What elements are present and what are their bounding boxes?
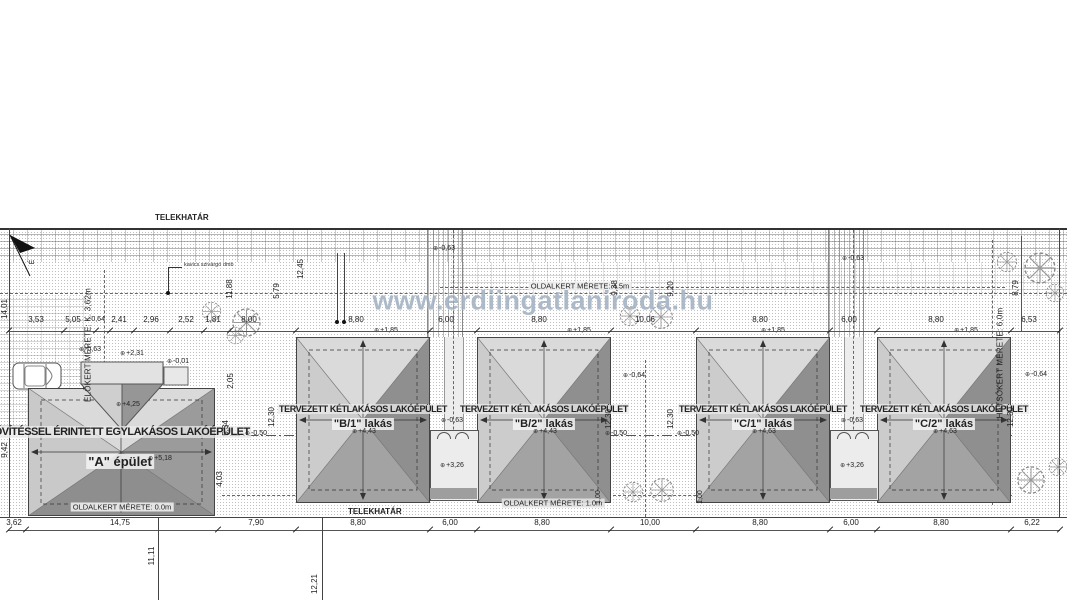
elevation-mark: -0,50 <box>605 430 627 438</box>
dim-value: 12,45 <box>297 259 305 279</box>
elevation-mark: +3,26 <box>440 462 464 470</box>
elevation-mark: +3,26 <box>840 462 864 470</box>
elevation-mark: -0,63 <box>841 417 863 425</box>
dim-value: 9,42 <box>1 442 9 458</box>
step-icon <box>455 432 469 439</box>
pole-dot <box>335 320 339 324</box>
sideyard-label-a: OLDALKERT MÉRETE: 0.0m <box>71 503 174 512</box>
elevation-mark: +4,43 <box>533 428 557 436</box>
dim-value: 4,03 <box>216 471 224 487</box>
dim-value: 1,00 <box>697 490 705 504</box>
elevation-mark: -0,50 <box>677 430 699 438</box>
elevation-mark: -0,63 <box>842 255 864 263</box>
dim-value: 2,41 <box>111 316 127 324</box>
dim-value: 8,80 <box>933 519 949 527</box>
pole-line <box>337 253 338 322</box>
tree-icon <box>1016 465 1046 495</box>
car-icon <box>12 361 62 391</box>
dim-value: 8,80 <box>752 519 768 527</box>
elevation-mark: +4,43 <box>352 428 376 436</box>
step-icon <box>837 432 851 439</box>
dim-value: 2,52 <box>178 316 194 324</box>
connector-c-eave <box>830 488 877 499</box>
dim-value: 6,00 <box>442 519 458 527</box>
dim-value: 6,00 <box>841 316 857 324</box>
pole-line <box>344 253 345 322</box>
dim-value: 8,80 <box>534 519 550 527</box>
dim-value: 14,75 <box>110 519 130 527</box>
dim-value: 14,01 <box>1 299 9 319</box>
tree-icon <box>622 481 644 503</box>
dim-value: 11,88 <box>226 279 234 298</box>
dim-value: 3,53 <box>28 316 44 324</box>
north-arrow-icon <box>8 232 40 278</box>
drain-note: kavics szivárgó dmb <box>184 262 234 268</box>
extension-line <box>322 517 323 600</box>
building-c1-title: TERVEZETT KÉTLAKÁSOS LAKÓÉPÜLET <box>678 404 848 414</box>
dim-value: 12,21 <box>311 574 319 594</box>
tree-icon <box>996 251 1018 273</box>
building-b1-title: TERVEZETT KÉTLAKÁSOS LAKÓÉPÜLET <box>278 404 448 414</box>
watermark: www.erdiingatlaniroda.hu <box>372 286 713 317</box>
dim-value: 6,00 <box>438 316 454 324</box>
dim-value: 6,22 <box>1024 519 1040 527</box>
building-a-extension <box>80 361 190 433</box>
dim-value: 8,80 <box>350 519 366 527</box>
rear-yard-label: HÁTSÓKERT MÉRETE: 6,0m <box>996 308 1005 419</box>
elevation-mark: -0,64 <box>623 372 645 380</box>
dim-value: 10,06 <box>635 316 655 324</box>
elevation-mark: +2,31 <box>120 350 144 358</box>
dim-value: 3,62 <box>6 519 22 527</box>
north-label: É <box>29 260 37 265</box>
dim-value: 8,00 <box>241 316 257 324</box>
dim-value: 8,80 <box>752 316 768 324</box>
tree-icon <box>1045 283 1065 303</box>
step-icon <box>437 432 451 439</box>
dim-value: 8,80 <box>928 316 944 324</box>
elevation-mark: +4,63 <box>752 428 776 436</box>
elevation-mark: -0,64 <box>1025 371 1047 379</box>
plot-boundary-top <box>0 228 1067 230</box>
drain-leader <box>168 267 169 293</box>
dim-value: 12,30 <box>268 407 276 427</box>
tree-icon <box>1048 457 1067 477</box>
dim-value: 5,05 <box>65 316 81 324</box>
elevation-mark: -0,01 <box>167 358 189 366</box>
dim-value: 6,00 <box>843 519 859 527</box>
dim-value: 8,80 <box>348 316 364 324</box>
dim-value: 2,96 <box>143 316 159 324</box>
building-a-name: "A" épület <box>86 454 154 469</box>
dim-chain-top <box>8 331 1060 332</box>
dim-value: 2,05 <box>227 373 235 389</box>
elevation-mark: -0,50 <box>245 430 267 438</box>
elevation-mark: +4,63 <box>933 428 957 436</box>
elevation-mark: +4,25 <box>116 401 140 409</box>
dim-value: 1,00 <box>595 490 603 504</box>
elevation-mark: -0,63 <box>433 245 455 253</box>
site-plan-drawing: É kavics szivárgó dmb <box>0 0 1067 600</box>
step-icon <box>855 432 869 439</box>
drain-leader <box>168 267 182 268</box>
dim-value: 8,79 <box>1012 280 1020 296</box>
dim-value: 5,79 <box>273 283 281 299</box>
dim-value: 5,34 <box>222 420 230 436</box>
dim-value: 12,30 <box>667 409 675 429</box>
elevation-mark: -0,63 <box>441 417 463 425</box>
tree-icon <box>649 477 675 503</box>
pole-dot <box>342 320 346 324</box>
connector-b-eave <box>430 488 477 499</box>
drain-dot <box>166 291 170 295</box>
paving-band-top <box>0 228 1067 262</box>
centerline-mid <box>645 360 646 517</box>
dim-value: 11,11 <box>148 547 156 566</box>
building-a-title: BŐVÍTÉSSEL ÉRINTETT EGYLAKÁSOS LAKÓÉPÜLE… <box>0 426 251 438</box>
dim-value: 1,81 <box>205 316 221 324</box>
plot-boundary-label-bottom: TELEKHATÁR <box>348 507 402 516</box>
plot-boundary-label-top: TELEKHATÁR <box>155 213 209 222</box>
dim-chain-bottom <box>8 530 1060 531</box>
dim-value: 12,30 <box>605 409 613 429</box>
dim-value: 12,30 <box>1007 407 1015 427</box>
tree-icon <box>1023 251 1057 285</box>
sideyard-label-b: OLDALKERT MÉRETE: 1.0m <box>502 499 605 508</box>
dim-value: 7,90 <box>248 519 264 527</box>
dim-value: -0,64 <box>89 316 105 324</box>
front-yard-label: ELŐKERT MÉRETE: K. 3,62m <box>84 288 93 402</box>
dim-value: 6,53 <box>1021 316 1037 324</box>
dim-value: 10,00 <box>640 519 660 527</box>
dim-value: 8,80 <box>531 316 547 324</box>
tree-icon <box>226 326 245 345</box>
extension-line <box>158 517 159 600</box>
elevation-mark: +5,18 <box>148 455 172 463</box>
